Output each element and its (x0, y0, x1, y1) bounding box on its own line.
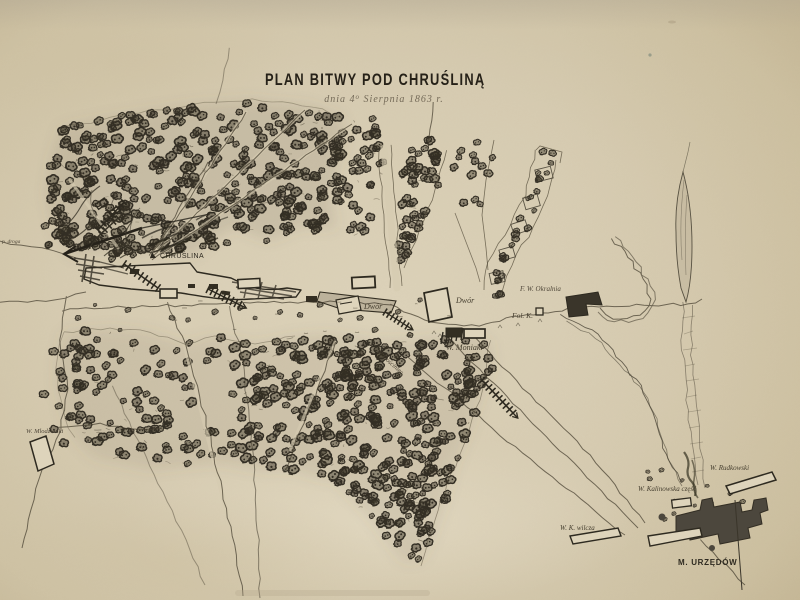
svg-text:PLAN BITWY POD CHRUŚLINĄ: PLAN BITWY POD CHRUŚLINĄ (265, 69, 485, 89)
svg-text:W. Mlodzianki: W. Mlodzianki (26, 428, 64, 435)
svg-text:W. Rudkowski: W. Rudkowski (710, 464, 749, 472)
svg-text:W. Moniaki: W. Moniaki (446, 343, 483, 352)
svg-text:p. droga: p. droga (1, 239, 21, 245)
svg-text:Dwór: Dwór (363, 302, 383, 311)
svg-text:Fol. K.: Fol. K. (511, 311, 533, 320)
svg-text:dnia 4o Sierpnia 1863 r.: dnia 4o Sierpnia 1863 r. (324, 93, 443, 105)
svg-text:W. Kalinowska część: W. Kalinowska część (638, 485, 697, 493)
svg-text:W. K. wilcza: W. K. wilcza (560, 524, 595, 532)
svg-text:F. W. Okralnia: F. W. Okralnia (519, 285, 561, 293)
svg-text:Dwór: Dwór (455, 296, 475, 305)
svg-text:M. URZĘDÓW: M. URZĘDÓW (678, 558, 737, 567)
